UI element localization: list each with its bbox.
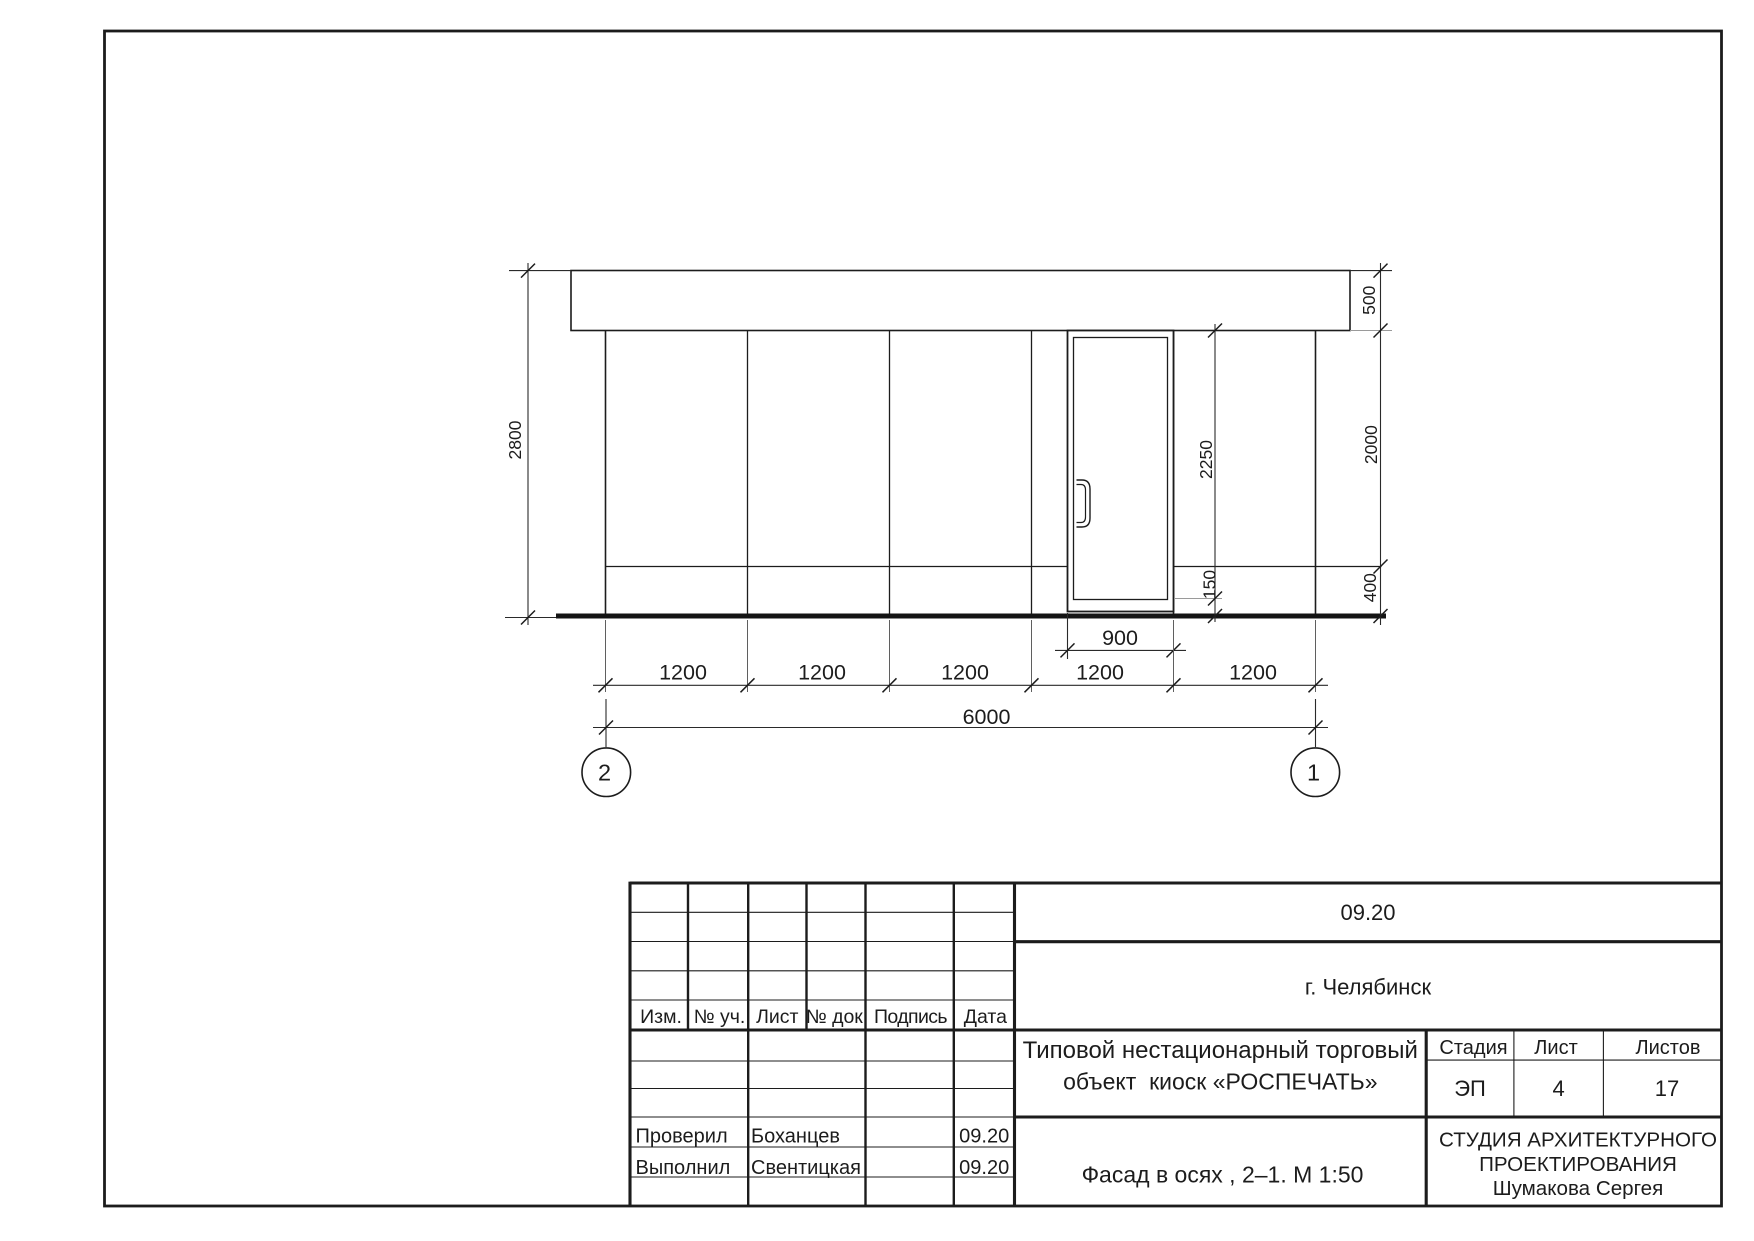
svg-text:Изм.: Изм. (640, 1006, 682, 1028)
svg-text:Свентицкая: Свентицкая (751, 1157, 861, 1179)
svg-text:09.20: 09.20 (1340, 900, 1395, 925)
svg-text:2800: 2800 (505, 420, 525, 459)
svg-text:1: 1 (1307, 760, 1320, 786)
svg-text:1200: 1200 (1229, 661, 1277, 685)
svg-text:1200: 1200 (941, 661, 989, 685)
svg-text:1200: 1200 (1076, 661, 1124, 685)
svg-text:№ док: № док (806, 1006, 864, 1028)
svg-text:ПРОЕКТИРОВАНИЯ: ПРОЕКТИРОВАНИЯ (1479, 1153, 1677, 1176)
svg-text:09.20: 09.20 (959, 1126, 1009, 1148)
svg-text:Лист: Лист (1534, 1037, 1577, 1059)
svg-text:г. Челябинск: г. Челябинск (1305, 975, 1432, 1000)
svg-text:Фасад в осях , 2–1. М 1:50: Фасад в осях , 2–1. М 1:50 (1082, 1161, 1364, 1187)
svg-text:2000: 2000 (1361, 425, 1381, 464)
svg-text:Стадия: Стадия (1439, 1037, 1507, 1059)
svg-text:6000: 6000 (963, 705, 1011, 729)
svg-text:1200: 1200 (798, 661, 846, 685)
svg-text:Выполнил: Выполнил (636, 1157, 731, 1179)
svg-text:Подпись: Подпись (874, 1006, 947, 1028)
svg-text:500: 500 (1359, 285, 1379, 314)
svg-text:4: 4 (1552, 1076, 1564, 1101)
svg-text:Лист: Лист (756, 1006, 798, 1028)
svg-text:1200: 1200 (659, 661, 707, 685)
svg-text:№ уч.: № уч. (694, 1006, 746, 1028)
svg-text:17: 17 (1655, 1076, 1679, 1101)
svg-text:Типовой нестационарный торговы: Типовой нестационарный торговый (1023, 1037, 1418, 1064)
svg-text:объект киоск «РОСПЕЧАТЬ»: объект киоск «РОСПЕЧАТЬ» (1063, 1069, 1377, 1095)
svg-text:Боханцев: Боханцев (751, 1126, 840, 1148)
svg-text:Проверил: Проверил (636, 1126, 728, 1148)
svg-text:Дата: Дата (964, 1006, 1007, 1028)
svg-text:2: 2 (598, 760, 611, 786)
svg-text:400: 400 (1360, 573, 1380, 602)
svg-text:150: 150 (1200, 570, 1220, 599)
svg-text:2250: 2250 (1196, 440, 1216, 479)
svg-text:Шумакова Сергея: Шумакова Сергея (1493, 1177, 1664, 1200)
svg-text:СТУДИЯ АРХИТЕКТУРНОГО: СТУДИЯ АРХИТЕКТУРНОГО (1439, 1129, 1717, 1152)
svg-text:Листов: Листов (1636, 1037, 1701, 1059)
svg-text:900: 900 (1102, 626, 1138, 650)
svg-text:09.20: 09.20 (959, 1157, 1009, 1179)
svg-text:ЭП: ЭП (1454, 1076, 1486, 1101)
